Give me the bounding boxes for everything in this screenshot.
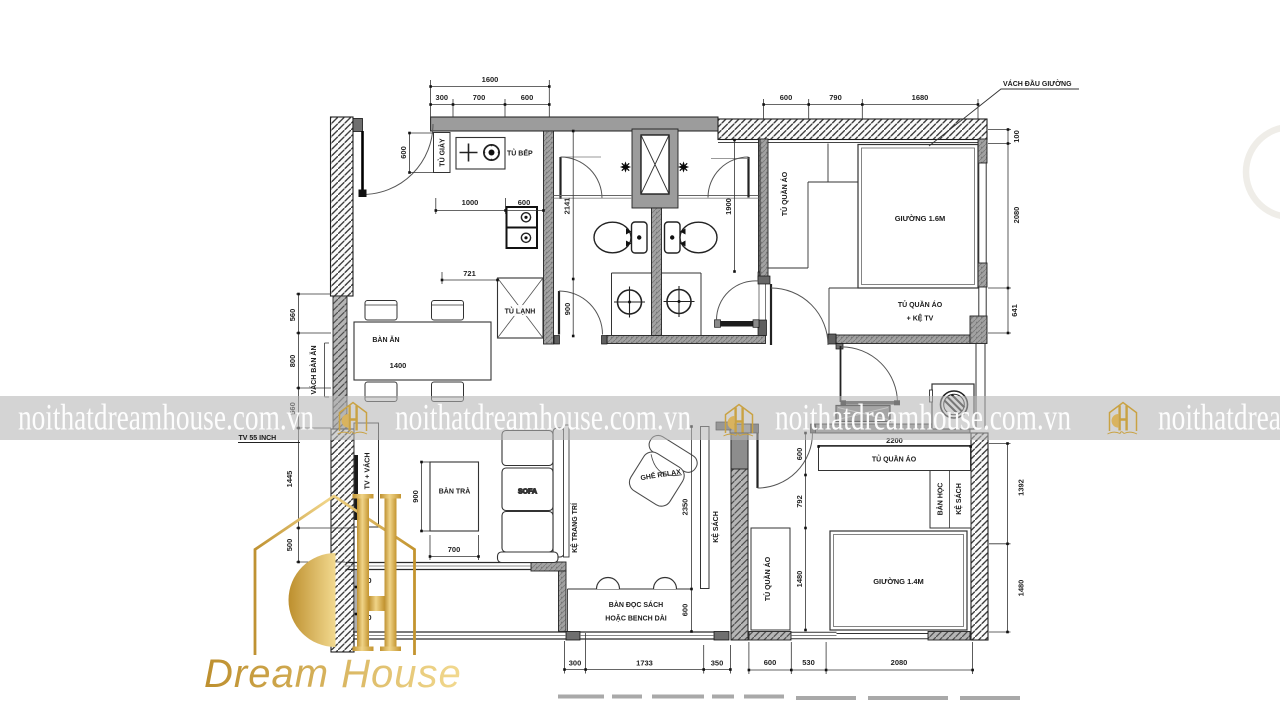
svg-text:HOẶC BENCH DÀI: HOẶC BENCH DÀI xyxy=(605,614,667,623)
svg-text:900: 900 xyxy=(411,490,420,503)
svg-text:2080: 2080 xyxy=(891,658,908,667)
svg-text:300: 300 xyxy=(436,93,449,102)
svg-text:GIƯỜNG 1.6M: GIƯỜNG 1.6M xyxy=(895,214,946,223)
svg-text:100: 100 xyxy=(1012,130,1021,143)
svg-text:641: 641 xyxy=(1010,304,1019,317)
svg-text:350: 350 xyxy=(711,659,724,668)
svg-text:2350: 2350 xyxy=(681,499,690,516)
svg-text:300: 300 xyxy=(569,659,582,668)
svg-text:560: 560 xyxy=(288,309,297,322)
svg-text:VÁCH BÀN ĂN: VÁCH BÀN ĂN xyxy=(309,346,318,395)
svg-text:900: 900 xyxy=(563,303,572,316)
svg-text:1400: 1400 xyxy=(390,361,407,370)
svg-text:noithatdreamhouse.com.vn: noithatdreamhouse.com.vn xyxy=(775,398,1071,439)
svg-text:noithatdreamhouse.com.vn: noithatdreamhouse.com.vn xyxy=(395,398,691,439)
svg-text:790: 790 xyxy=(829,93,842,102)
svg-text:KỆ TRANG TRÍ: KỆ TRANG TRÍ xyxy=(570,502,579,553)
svg-text:noithatdreamhouse.com.vn: noithatdreamhouse.com.vn xyxy=(1158,398,1280,439)
svg-text:+ KỆ TV: + KỆ TV xyxy=(907,314,934,323)
svg-text:BÀN HỌC: BÀN HỌC xyxy=(936,483,945,516)
svg-text:1480: 1480 xyxy=(795,571,804,588)
svg-text:TV + VÁCH: TV + VÁCH xyxy=(363,453,372,490)
svg-text:1680: 1680 xyxy=(912,93,929,102)
svg-text:BÀN ĐỌC SÁCH: BÀN ĐỌC SÁCH xyxy=(609,600,663,609)
svg-text:700: 700 xyxy=(473,93,486,102)
svg-text:1445: 1445 xyxy=(285,471,294,488)
svg-text:1900: 1900 xyxy=(724,198,733,215)
svg-text:BÀN TRÀ: BÀN TRÀ xyxy=(439,487,471,496)
svg-text:600: 600 xyxy=(399,146,408,159)
svg-text:721: 721 xyxy=(463,269,476,278)
svg-text:GIƯỜNG 1.4M: GIƯỜNG 1.4M xyxy=(873,577,924,586)
svg-text:530: 530 xyxy=(802,658,815,667)
svg-text:2080: 2080 xyxy=(1012,207,1021,224)
svg-text:600: 600 xyxy=(780,93,793,102)
svg-text:1733: 1733 xyxy=(636,659,653,668)
svg-text:1000: 1000 xyxy=(462,198,479,207)
svg-text:1392: 1392 xyxy=(1017,479,1026,496)
svg-text:1600: 1600 xyxy=(482,75,499,84)
svg-text:KỆ SÁCH: KỆ SÁCH xyxy=(711,511,720,543)
svg-text:800: 800 xyxy=(288,355,297,368)
svg-text:BÀN ĂN: BÀN ĂN xyxy=(372,335,399,344)
svg-text:TỦ GIÀY: TỦ GIÀY xyxy=(438,138,447,167)
svg-text:KỆ SÁCH: KỆ SÁCH xyxy=(954,483,963,515)
svg-text:2141: 2141 xyxy=(563,198,572,215)
svg-text:700: 700 xyxy=(448,545,461,554)
svg-text:noithatdreamhouse.com.vn: noithatdreamhouse.com.vn xyxy=(18,398,314,439)
svg-text:1480: 1480 xyxy=(1017,580,1026,597)
svg-text:600: 600 xyxy=(521,93,534,102)
svg-text:Dream House: Dream House xyxy=(204,652,462,696)
svg-text:600: 600 xyxy=(518,198,531,207)
svg-text:TỦ LẠNH: TỦ LẠNH xyxy=(505,307,536,316)
svg-text:600: 600 xyxy=(764,658,777,667)
svg-text:SOFA: SOFA xyxy=(518,489,537,496)
svg-text:792: 792 xyxy=(795,495,804,508)
svg-text:600: 600 xyxy=(681,604,690,617)
svg-text:600: 600 xyxy=(795,448,804,461)
svg-text:500: 500 xyxy=(285,539,294,552)
